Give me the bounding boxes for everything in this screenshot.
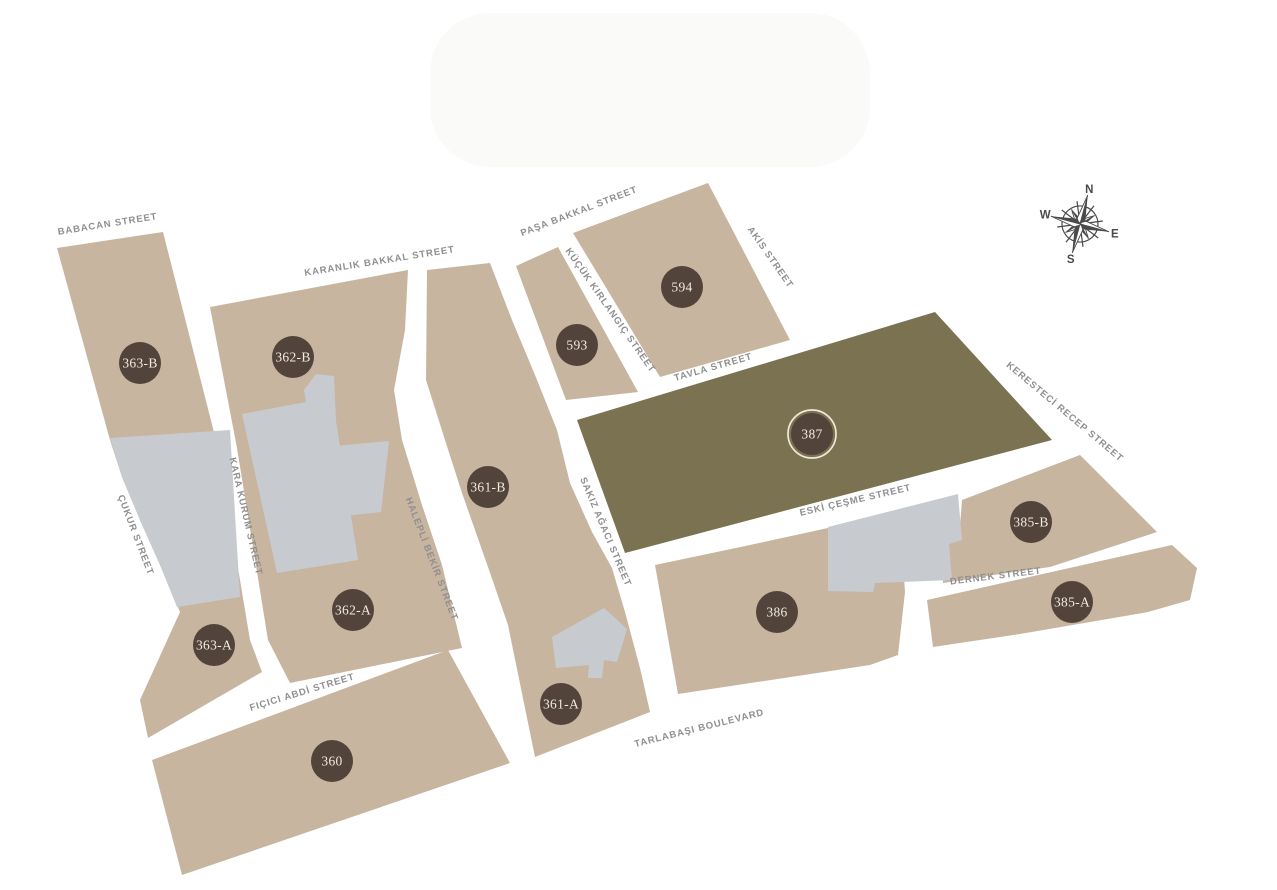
block-marker-363-A[interactable]: 363-A [193,624,235,666]
block-marker-360[interactable]: 360 [311,740,353,782]
block-marker-label: 363-A [196,638,232,653]
building-footprint [828,494,962,592]
block-marker-label: 362-A [335,603,371,618]
block-marker-label: 385-A [1054,595,1090,610]
block-marker-362-A[interactable]: 362-A [332,589,374,631]
block-marker-label: 362-B [275,350,310,365]
block-marker-387[interactable]: 387 [788,410,836,458]
block-marker-label: 360 [321,754,342,769]
block-marker-363-B[interactable]: 363-B [119,342,161,384]
compass-south-label: S [1067,254,1075,266]
block-marker-label: 361-A [543,697,579,712]
block-marker-361-B[interactable]: 361-B [467,466,509,508]
block-marker-361-A[interactable]: 361-A [540,683,582,725]
block-marker-label: 361-B [470,480,505,495]
block-marker-label: 387 [801,427,822,442]
block-marker-label: 594 [671,280,692,295]
block-marker-385-B[interactable]: 385-B [1010,501,1052,543]
block-marker-label: 593 [566,338,587,353]
compass-north-label: N [1085,184,1093,196]
site-plan-map: BABACAN STREET KARANLIK BAKKAL STREET PA… [0,0,1277,890]
block-marker-385-A[interactable]: 385-A [1051,581,1093,623]
building-footprint [336,441,389,516]
redacted-logo-area [430,13,870,167]
street-label-tarlabasi: TARLABAŞI BOULEVARD [633,707,765,750]
block-marker-593[interactable]: 593 [556,324,598,366]
block-marker-362-B[interactable]: 362-B [272,336,314,378]
compass-rose-icon: N E S W [1028,173,1132,278]
compass-east-label: E [1111,228,1119,240]
compass-west-label: W [1040,210,1051,222]
block-marker-label: 363-B [122,356,157,371]
block-marker-386[interactable]: 386 [756,591,798,633]
block-marker-594[interactable]: 594 [661,266,703,308]
block-marker-label: 386 [766,605,787,620]
block-marker-label: 385-B [1013,515,1048,530]
street-label-babacan: BABACAN STREET [57,211,158,238]
